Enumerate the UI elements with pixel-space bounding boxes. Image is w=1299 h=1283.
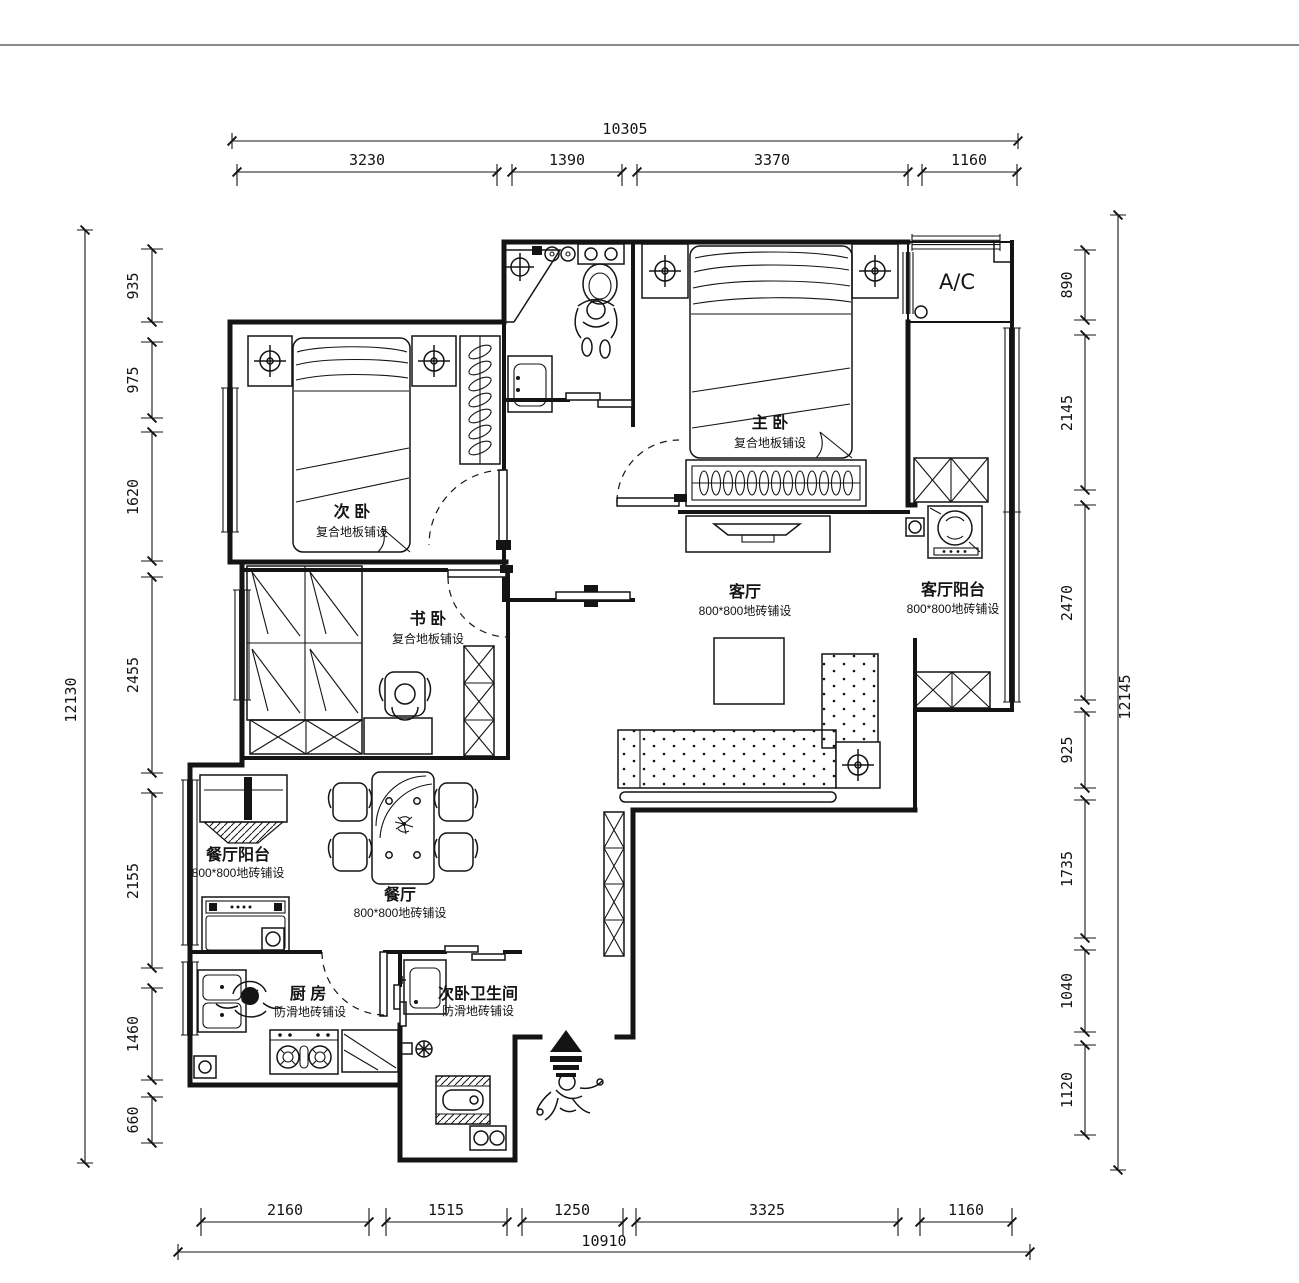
- floor-plan-canvas: 10305 3230 1390 3370 1160 2160 1515 1250…: [0, 0, 1299, 1283]
- dim-bottom-0: 2160: [267, 1201, 303, 1219]
- room-floor-second-bathroom: 防滑地砖铺设: [442, 1003, 514, 1018]
- door-hall-vestibule: [556, 585, 630, 607]
- room-master-bedroom: 主 卧 复合地板铺设: [642, 244, 898, 506]
- door-master-bedroom: [617, 440, 687, 506]
- dim-top-0: 3230: [349, 151, 385, 169]
- room-second-bedroom: 次 卧 复合地板铺设: [248, 336, 500, 552]
- sofa: [618, 654, 880, 802]
- dim-right-3: 925: [1058, 736, 1076, 763]
- cabinet-x: [250, 720, 362, 754]
- person-figure-entry: [537, 1074, 603, 1120]
- person-figure: [575, 300, 617, 359]
- room-dining-balcony: 餐厅阳台 800*800地砖铺设: [192, 775, 289, 952]
- dim-right-0: 890: [1058, 271, 1076, 298]
- desk: [364, 718, 432, 754]
- dim-right-2: 2470: [1058, 585, 1076, 621]
- room-floor-study-bedroom: 复合地板铺设: [392, 631, 464, 646]
- person-figure: [216, 981, 281, 1016]
- room-floor-dining-balcony: 800*800地砖铺设: [192, 865, 285, 880]
- room-floor-second-bedroom: 复合地板铺设: [316, 524, 388, 539]
- dim-bottom-4: 1160: [948, 1201, 984, 1219]
- wardrobe-hanger-rail: [686, 460, 866, 506]
- dim-left-1: 975: [124, 366, 142, 393]
- dim-left-2: 1620: [124, 479, 142, 515]
- bathroom-sink: [508, 356, 552, 412]
- dim-right-total: 12145: [1116, 674, 1134, 719]
- cabinet-x: [914, 672, 990, 708]
- sofa-back: [620, 792, 836, 802]
- dim-top-total: 10305: [602, 120, 647, 138]
- dimension-chain-top: 10305 3230 1390 3370 1160: [232, 120, 1018, 186]
- toilet: [578, 244, 624, 304]
- counter: [342, 1030, 398, 1072]
- dim-right-5: 1040: [1058, 973, 1076, 1009]
- dim-bottom-1: 1515: [428, 1201, 464, 1219]
- wardrobe-x: [464, 646, 494, 756]
- room-label-dining-balcony: 餐厅阳台: [205, 845, 270, 864]
- ac-platform: A/C: [915, 242, 1012, 318]
- room-floor-living-balcony: 800*800地砖铺设: [907, 601, 1000, 616]
- room-floor-master-bedroom: 复合地板铺设: [734, 435, 806, 450]
- room-dining-room: 餐厅 800*800地砖铺设: [329, 772, 625, 956]
- dining-chair: [435, 833, 478, 871]
- room-kitchen: 厨 房 防滑地砖铺设: [194, 970, 398, 1078]
- dim-left-0: 935: [124, 272, 142, 299]
- ac-label: A/C: [939, 270, 975, 294]
- dim-bottom-3: 3325: [749, 1201, 785, 1219]
- dim-top-3: 1160: [951, 151, 987, 169]
- dim-bottom-2: 1250: [554, 1201, 590, 1219]
- tatami-bed: [247, 566, 362, 720]
- gas-stove: [270, 1030, 338, 1074]
- drain-icon: [915, 306, 927, 318]
- ceiling-light-icon: [859, 255, 891, 287]
- room-label-second-bathroom: 次卧卫生间: [438, 984, 518, 1003]
- floor-plan-drawing: 10305 3230 1390 3370 1160 2160 1515 1250…: [0, 0, 1299, 1283]
- room-living-balcony: 客厅阳台 800*800地砖铺设: [906, 458, 999, 708]
- room-label-living-room: 客厅: [729, 582, 761, 601]
- dimension-chain-right: 12145 890 2145 2470 925 1735 1040 1120: [1058, 215, 1134, 1170]
- dining-chair: [329, 783, 372, 821]
- dining-chair: [435, 783, 478, 821]
- dishwasher: [202, 897, 289, 952]
- washing-machine: [928, 506, 982, 558]
- squat-toilet: [436, 1076, 490, 1124]
- ceiling-light-icon: [254, 345, 286, 377]
- room-floor-living-room: 800*800地砖铺设: [699, 603, 792, 618]
- dim-left-3: 2455: [124, 657, 142, 693]
- dim-right-1: 2145: [1058, 395, 1076, 431]
- cabinet-x: [914, 458, 988, 502]
- floor-drain-icon: [470, 1126, 506, 1150]
- room-floor-kitchen: 防滑地砖铺设: [274, 1004, 346, 1019]
- balcony-cabinet: [200, 775, 287, 843]
- room-master-bathroom: [506, 244, 624, 412]
- dim-left-total: 12130: [62, 677, 80, 722]
- wardrobe: [460, 336, 500, 464]
- coffee-table: [714, 638, 784, 704]
- dimension-chain-left: 12130 935 975 1620 2455 2155 1460 660: [62, 230, 163, 1163]
- desk-chair-person: [380, 672, 431, 720]
- tv-cabinet: [686, 516, 830, 552]
- dim-right-6: 1120: [1058, 1072, 1076, 1108]
- room-second-bathroom: 次卧卫生间 防滑地砖铺设: [398, 960, 518, 1150]
- room-label-master-bedroom: 主 卧: [752, 413, 788, 432]
- room-floor-dining-room: 800*800地砖铺设: [354, 905, 447, 920]
- room-label-second-bedroom: 次 卧: [334, 502, 370, 521]
- ceiling-light-icon: [418, 345, 450, 377]
- entry-arrow: [550, 1030, 582, 1077]
- room-study-bedroom: 书 卧 复合地板铺设: [247, 566, 494, 756]
- dining-table: [372, 772, 434, 884]
- floor-drain-icon: [906, 518, 924, 536]
- dim-top-1: 1390: [549, 151, 585, 169]
- dimension-chain-bottom: 2160 1515 1250 3325 1160 10910: [178, 1201, 1030, 1260]
- dim-left-5: 1460: [124, 1016, 142, 1052]
- room-label-kitchen: 厨 房: [290, 984, 326, 1003]
- room-living-room: 客厅 800*800地砖铺设: [618, 516, 880, 802]
- shoe-cabinet-x: [604, 812, 624, 956]
- room-label-dining-room: 餐厅: [383, 885, 416, 904]
- sliding-door-master-bathroom: [566, 393, 632, 407]
- dining-chair: [329, 833, 372, 871]
- door-second-bedroom: [429, 470, 511, 550]
- floor-drain-icon: [194, 1056, 216, 1078]
- sliding-door-second-bathroom: [445, 946, 505, 960]
- shower-valve-icon: [400, 1041, 432, 1057]
- dim-bottom-total: 10910: [581, 1232, 626, 1250]
- dim-left-6: 660: [124, 1106, 142, 1133]
- room-label-living-balcony: 客厅阳台: [921, 580, 985, 599]
- dim-top-2: 3370: [754, 151, 790, 169]
- room-label-study-bedroom: 书 卧: [410, 609, 446, 628]
- ceiling-light-icon: [649, 255, 681, 287]
- dim-left-4: 2155: [124, 863, 142, 899]
- faucet-icon: [506, 253, 534, 281]
- dim-right-4: 1735: [1058, 851, 1076, 887]
- walls: [190, 242, 1012, 1160]
- pipe-icon: [561, 247, 575, 261]
